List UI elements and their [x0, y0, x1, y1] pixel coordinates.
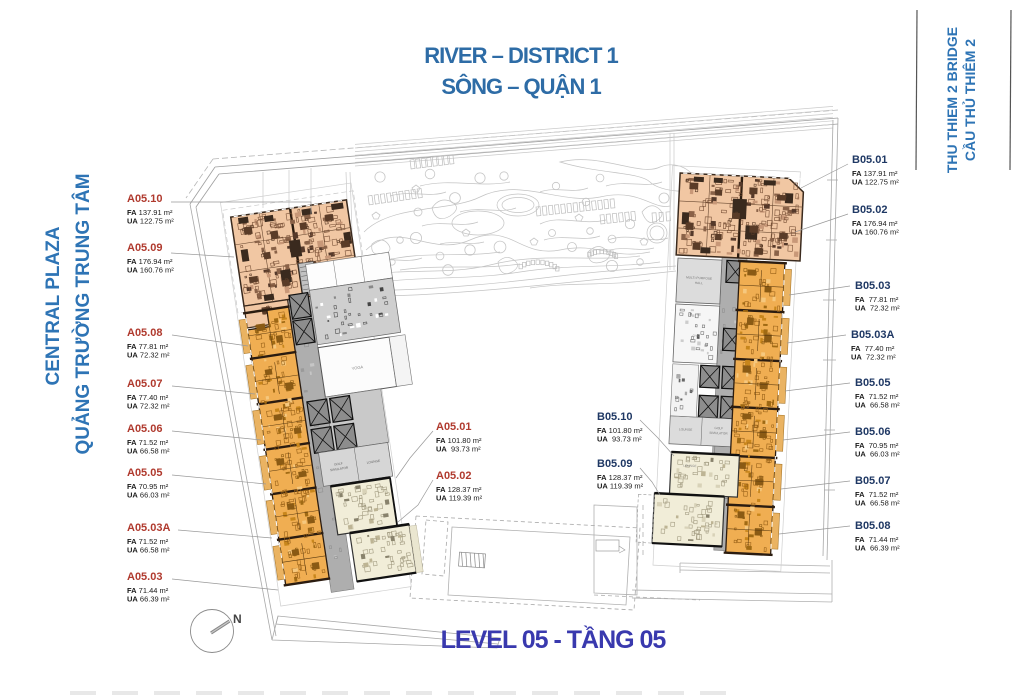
svg-text:UA 93.73 m²: UA 93.73 m² — [436, 445, 481, 454]
svg-text:UA 93.73 m²: UA 93.73 m² — [597, 435, 642, 444]
svg-text:UA 66.58 m²: UA 66.58 m² — [127, 447, 170, 456]
svg-text:UA 66.39 m²: UA 66.39 m² — [127, 595, 170, 604]
svg-text:UA 119.39 m²: UA 119.39 m² — [597, 482, 644, 491]
svg-text:UA 160.76 m²: UA 160.76 m² — [852, 228, 899, 237]
svg-text:A05.06: A05.06 — [127, 423, 162, 435]
svg-text:GOLF: GOLF — [714, 426, 723, 430]
svg-text:B05.08: B05.08 — [855, 520, 890, 532]
svg-text:UA 66.03 m²: UA 66.03 m² — [855, 450, 900, 459]
svg-text:QUẢNG TRƯỜNG TRUNG TÂM: QUẢNG TRƯỜNG TRUNG TÂM — [72, 173, 94, 454]
svg-text:B05.09: B05.09 — [597, 458, 632, 470]
svg-text:A05.03A: A05.03A — [127, 522, 170, 534]
svg-text:B05.10: B05.10 — [597, 411, 632, 423]
svg-text:LOUNGE: LOUNGE — [679, 427, 693, 432]
svg-text:B05.03: B05.03 — [855, 280, 890, 292]
svg-text:B05.06: B05.06 — [855, 426, 890, 438]
svg-text:A05.09: A05.09 — [127, 242, 162, 254]
svg-text:UA 119.39 m²: UA 119.39 m² — [436, 494, 483, 503]
svg-text:A05.05: A05.05 — [127, 467, 162, 479]
svg-text:UA 72.32 m²: UA 72.32 m² — [851, 353, 896, 362]
svg-text:UA 72.32 m²: UA 72.32 m² — [855, 304, 900, 313]
svg-text:A05.01: A05.01 — [436, 421, 471, 433]
svg-text:LEVEL 05 - TẦNG 05: LEVEL 05 - TẦNG 05 — [441, 625, 667, 654]
svg-text:UA 66.39 m²: UA 66.39 m² — [855, 544, 900, 553]
svg-text:B05.03A: B05.03A — [851, 329, 894, 341]
svg-text:UA 72.32 m²: UA 72.32 m² — [127, 402, 170, 411]
svg-text:LOUNGE: LOUNGE — [683, 463, 697, 468]
svg-text:UA 122.75 m²: UA 122.75 m² — [852, 178, 899, 187]
svg-text:UA 66.03 m²: UA 66.03 m² — [127, 491, 170, 500]
svg-text:UA 66.58 m²: UA 66.58 m² — [127, 546, 170, 555]
svg-text:B05.07: B05.07 — [855, 475, 890, 487]
svg-text:B05.01: B05.01 — [852, 154, 887, 166]
svg-text:A05.10: A05.10 — [127, 193, 162, 205]
svg-text:A05.07: A05.07 — [127, 378, 162, 390]
svg-text:B05.05: B05.05 — [855, 377, 890, 389]
svg-text:SÔNG – QUẬN 1: SÔNG – QUẬN 1 — [441, 74, 601, 99]
svg-text:UA 160.76 m²: UA 160.76 m² — [127, 266, 174, 275]
svg-text:UA 66.58 m²: UA 66.58 m² — [855, 499, 900, 508]
svg-text:UA 66.58 m²: UA 66.58 m² — [855, 401, 900, 410]
svg-text:HALL: HALL — [695, 281, 703, 285]
svg-text:THU THIEM 2 BRIDGE: THU THIEM 2 BRIDGE — [944, 27, 960, 173]
svg-text:A05.03: A05.03 — [127, 571, 162, 583]
svg-text:CENTRAL PLAZA: CENTRAL PLAZA — [43, 226, 64, 385]
svg-text:A05.02: A05.02 — [436, 470, 471, 482]
svg-text:A05.08: A05.08 — [127, 327, 162, 339]
svg-text:CẦU THỦ THIÊM 2: CẦU THỦ THIÊM 2 — [961, 39, 978, 161]
svg-text:UA 122.75 m²: UA 122.75 m² — [127, 217, 174, 226]
svg-text:N: N — [233, 612, 242, 626]
svg-text:UA 72.32 m²: UA 72.32 m² — [127, 351, 170, 360]
svg-text:B05.02: B05.02 — [852, 204, 887, 216]
svg-text:RIVER – DISTRICT 1: RIVER – DISTRICT 1 — [424, 43, 618, 68]
svg-text:GYM: GYM — [692, 334, 700, 338]
